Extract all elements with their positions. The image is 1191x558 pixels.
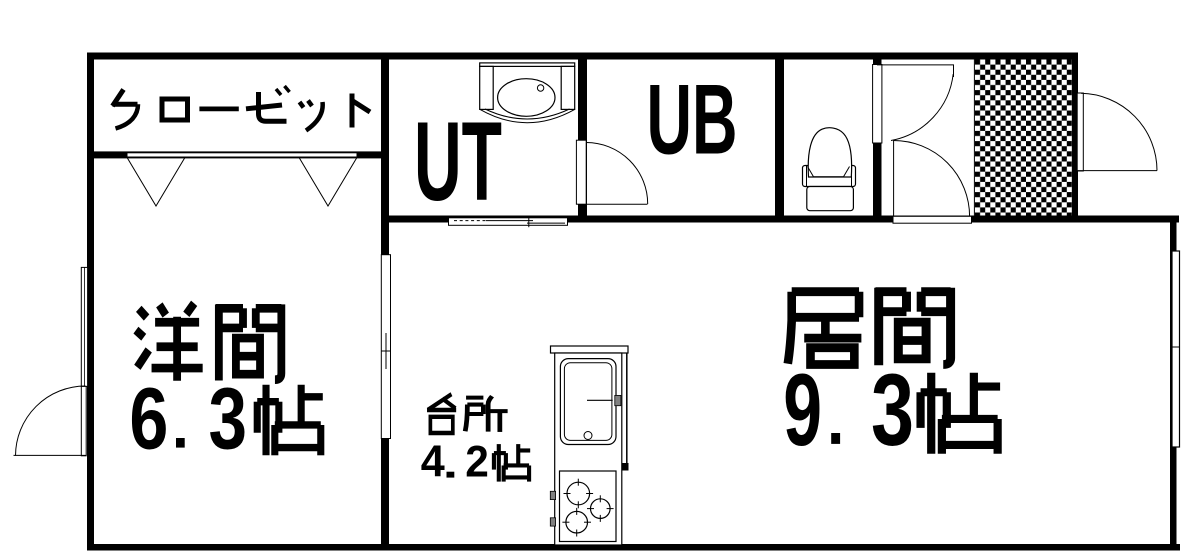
svg-text:9: 9 xyxy=(783,353,822,467)
svg-text:4: 4 xyxy=(421,438,445,487)
svg-text:UT: UT xyxy=(414,99,502,224)
svg-text:UB: UB xyxy=(647,64,738,175)
svg-text:6: 6 xyxy=(129,371,168,468)
svg-text:3: 3 xyxy=(871,353,914,467)
svg-text:2: 2 xyxy=(465,438,489,487)
svg-text:3: 3 xyxy=(209,371,248,468)
